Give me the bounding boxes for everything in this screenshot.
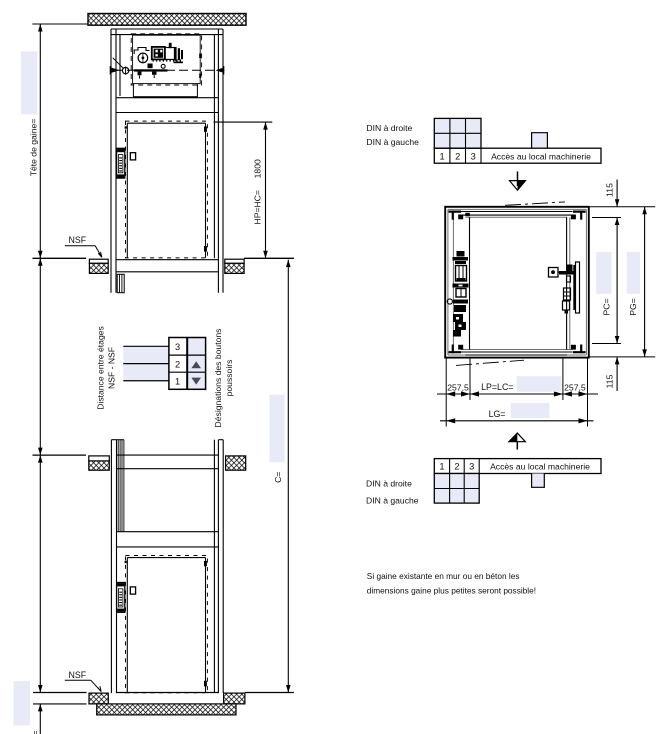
svg-text:poussoirs: poussoirs	[224, 360, 234, 397]
svg-text:PC=: PC=	[602, 299, 612, 316]
svg-text:3: 3	[471, 151, 476, 161]
svg-text:NSF: NSF	[68, 670, 86, 680]
svg-text:LG=: LG=	[489, 409, 506, 419]
svg-text:3: 3	[175, 342, 180, 352]
svg-text:2: 2	[455, 151, 460, 161]
svg-text:DIN à droite: DIN à droite	[366, 479, 412, 489]
svg-text:257,5: 257,5	[564, 382, 586, 392]
svg-text:2: 2	[454, 462, 459, 472]
svg-text:DIN à gauche: DIN à gauche	[366, 137, 419, 147]
svg-text:1: 1	[439, 462, 444, 472]
svg-text:1: 1	[175, 377, 180, 387]
svg-text:PG=: PG=	[628, 298, 638, 315]
svg-text:DIN à droite: DIN à droite	[366, 123, 412, 133]
svg-text:115: 115	[604, 183, 614, 197]
svg-text:DIN à gauche: DIN à gauche	[366, 496, 419, 506]
svg-text:Si gaine existante en mur ou e: Si gaine existante en mur ou en béton le…	[367, 571, 520, 581]
svg-text:LP=LC=: LP=LC=	[481, 382, 513, 392]
svg-text:2: 2	[175, 359, 180, 369]
svg-text:Distance entre étages: Distance entre étages	[95, 326, 105, 410]
svg-text:HP=HC=: HP=HC=	[252, 190, 262, 224]
svg-text:NSF - NSF: NSF - NSF	[107, 347, 117, 389]
svg-text:115: 115	[604, 374, 614, 388]
svg-text:Accès au local machinerie: Accès au local machinerie	[491, 151, 591, 161]
svg-text:Accès au local machinerie: Accès au local machinerie	[490, 462, 590, 472]
svg-text:Désignations des boutons: Désignations des boutons	[213, 329, 223, 428]
svg-text:Tête de gaine=: Tête de gaine=	[29, 119, 39, 177]
svg-text:1: 1	[440, 151, 445, 161]
svg-text:dimensions gaine plus petites: dimensions gaine plus petites seront pos…	[367, 585, 536, 595]
svg-text:257,5: 257,5	[447, 382, 469, 392]
svg-text:1800: 1800	[252, 159, 262, 178]
svg-text:C=: C=	[273, 472, 283, 483]
svg-text:NSF: NSF	[68, 235, 86, 245]
svg-text:Fosse=: Fosse=	[30, 731, 40, 734]
svg-text:3: 3	[469, 462, 474, 472]
